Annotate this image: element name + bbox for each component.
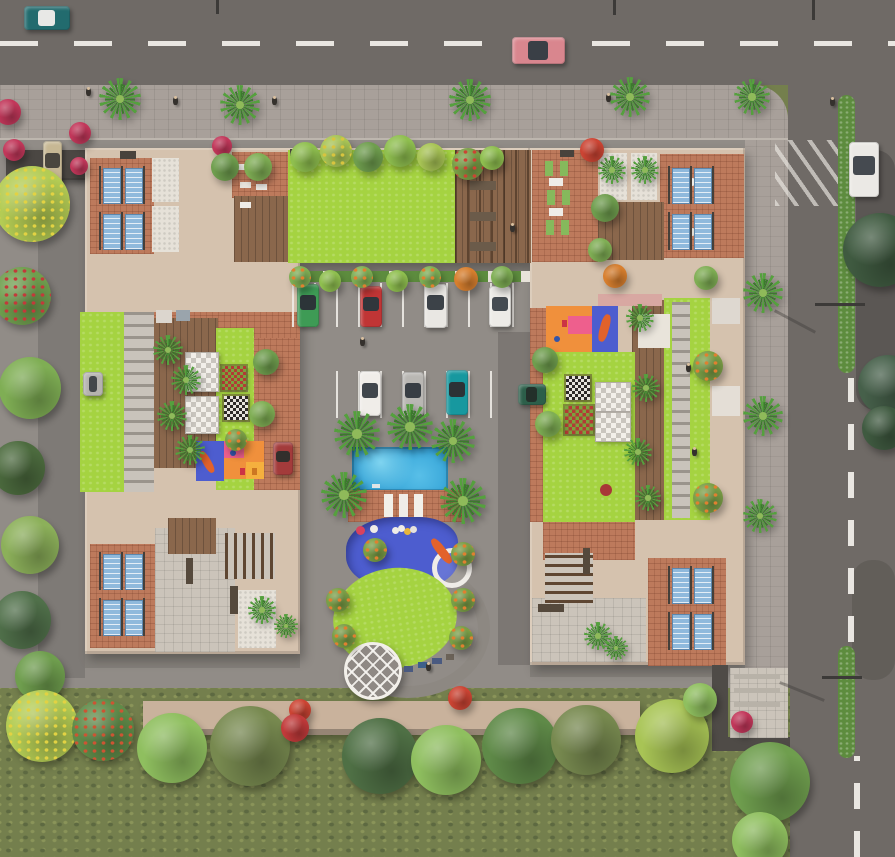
parked-car-red: [360, 286, 382, 327]
person: [360, 338, 365, 346]
palm-tree: [248, 596, 276, 624]
tree: [72, 699, 134, 761]
deco-rect: [554, 336, 560, 342]
tree: [454, 267, 478, 291]
palm-tree: [610, 77, 650, 117]
solar-lounger-group: [99, 212, 145, 250]
tree: [603, 264, 627, 288]
street-lamp: [779, 681, 825, 702]
palm-tree: [624, 438, 652, 466]
tree: [588, 238, 612, 262]
deco-rect: [398, 525, 405, 532]
tree: [448, 686, 472, 710]
tree: [244, 153, 272, 181]
tree: [289, 266, 311, 288]
deco-rect: [545, 161, 553, 176]
deco-rect: [370, 525, 378, 533]
tree: [482, 708, 558, 784]
tree: [862, 406, 895, 450]
deco-rect: [240, 468, 245, 475]
parked-car-darkgreen: [518, 384, 546, 405]
tree: [694, 266, 718, 290]
person: [692, 448, 697, 456]
tree: [683, 683, 717, 717]
tree: [351, 266, 373, 288]
palm-tree: [153, 335, 183, 365]
tree: [363, 538, 387, 562]
pergola-table: [185, 396, 219, 434]
palm-tree: [626, 304, 654, 332]
tree: [532, 347, 558, 373]
tree: [580, 138, 604, 162]
tree: [137, 713, 207, 783]
tree: [69, 122, 91, 144]
deco-rect: [734, 702, 780, 707]
palm-tree: [743, 499, 777, 533]
street-car-red: [512, 37, 565, 64]
palm-tree: [743, 273, 783, 313]
tree: [225, 429, 247, 451]
tree: [451, 542, 475, 566]
palm-tree: [387, 404, 433, 450]
street-car-teal: [24, 6, 70, 30]
street-lamp: [613, 0, 616, 15]
game-checkerboard: [222, 366, 246, 390]
deco-rect: [256, 184, 267, 190]
deco-rect: [470, 242, 496, 251]
street-lamp: [774, 309, 816, 333]
deco-rect: [561, 220, 569, 235]
tree: [693, 351, 723, 381]
palm-tree: [171, 365, 201, 395]
site-plan-render: [0, 0, 895, 857]
deco-rect: [399, 494, 408, 517]
pergola-table: [595, 382, 631, 412]
deco-rect: [583, 548, 590, 574]
parked-car-white: [424, 284, 447, 328]
tree: [730, 742, 810, 822]
parked-car-white: [489, 286, 511, 327]
deco-rect: [562, 190, 570, 205]
deco-rect: [549, 208, 563, 216]
tree: [452, 148, 484, 180]
solar-lounger-group: [668, 566, 714, 604]
deco-rect: [549, 178, 563, 186]
person: [86, 88, 91, 96]
tree: [332, 624, 356, 648]
deco-rect: [404, 666, 413, 672]
deco-rect: [240, 182, 251, 188]
tree: [3, 139, 25, 161]
tree: [70, 157, 88, 175]
tree: [319, 270, 341, 292]
tree: [417, 143, 445, 171]
tree: [386, 270, 408, 292]
tree: [353, 142, 383, 172]
tree: [551, 705, 621, 775]
solar-lounger-group: [668, 612, 714, 650]
person: [686, 364, 691, 372]
tree: [480, 146, 504, 170]
street-lamp: [216, 0, 219, 14]
tree: [449, 626, 473, 650]
solar-lounger-group: [99, 598, 145, 636]
deco-rect: [446, 654, 454, 660]
palm-tree: [743, 396, 783, 436]
solar-lounger-group: [99, 552, 145, 590]
tree: [491, 266, 513, 288]
tree: [0, 441, 45, 495]
deco-rect: [470, 212, 496, 221]
palm-tree: [220, 85, 260, 125]
parked-car-darkred: [273, 442, 293, 475]
tree: [320, 135, 352, 167]
deco-rect: [432, 658, 442, 664]
parked-car-white: [359, 371, 381, 416]
tree: [843, 213, 895, 287]
tree: [249, 401, 275, 427]
parked-car-silver: [83, 372, 103, 396]
palm-tree: [175, 435, 205, 465]
palm-tree: [734, 79, 770, 115]
tree: [451, 588, 475, 612]
tree: [326, 588, 350, 612]
deco-rect: [414, 494, 423, 517]
tree: [290, 142, 320, 172]
deco-rect: [156, 310, 172, 323]
deco-rect: [120, 151, 136, 159]
scene-items-layer: [0, 0, 895, 857]
game-checkerboard: [565, 406, 593, 434]
tree: [253, 349, 279, 375]
tree: [0, 591, 51, 649]
tree: [0, 99, 21, 125]
palm-tree: [431, 419, 475, 463]
deco-rect: [734, 688, 780, 693]
palm-tree: [157, 401, 187, 431]
palm-tree: [449, 79, 491, 121]
street-lamp: [822, 676, 862, 679]
person: [272, 97, 277, 105]
person: [173, 97, 178, 105]
deco-rect: [356, 526, 365, 535]
tree: [0, 166, 70, 242]
palm-tree: [632, 374, 660, 402]
tree: [210, 706, 290, 786]
deco-rect: [252, 468, 257, 475]
solar-lounger-group: [668, 212, 714, 250]
palm-tree: [631, 156, 659, 184]
tree: [419, 266, 441, 288]
deco-rect: [538, 604, 564, 612]
palm-tree: [598, 156, 626, 184]
deco-rect: [470, 181, 496, 190]
deco-rect: [240, 202, 251, 208]
tree: [1, 516, 59, 574]
parked-car-green: [297, 284, 319, 327]
street-lamp: [812, 0, 815, 20]
deco-rect: [410, 526, 417, 533]
deco-rect: [712, 386, 740, 416]
tree: [281, 714, 309, 742]
pergola-table: [595, 412, 631, 442]
tree: [211, 153, 239, 181]
deco-rect: [560, 161, 568, 176]
tree: [731, 711, 753, 733]
deco-rect: [372, 484, 380, 488]
solar-lounger-group: [99, 166, 145, 204]
deco-rect: [230, 586, 238, 614]
tree: [384, 135, 416, 167]
palm-tree: [440, 478, 486, 524]
game-checkerboard: [224, 396, 248, 420]
palm-tree: [274, 614, 298, 638]
tree: [535, 411, 561, 437]
tree: [342, 718, 418, 794]
tree: [693, 483, 723, 513]
tree: [0, 357, 61, 419]
parked-car-teal: [446, 370, 468, 415]
tree: [0, 267, 51, 325]
deco-rect: [562, 320, 567, 327]
deco-rect: [600, 484, 612, 496]
street-car-white: [849, 142, 879, 197]
deco-rect: [597, 313, 613, 342]
deco-rect: [186, 558, 193, 584]
person: [830, 98, 835, 106]
palm-tree: [635, 485, 661, 511]
deco-rect: [384, 494, 393, 517]
person: [510, 224, 515, 232]
deco-rect: [712, 298, 740, 324]
game-checkerboard: [566, 376, 590, 400]
palm-tree: [321, 472, 367, 518]
deco-rect: [560, 150, 574, 157]
deco-rect: [546, 220, 554, 235]
tree: [411, 725, 481, 795]
solar-lounger-group: [668, 166, 714, 204]
deco-rect: [547, 190, 555, 205]
deco-rect: [176, 310, 190, 321]
palm-tree: [604, 636, 628, 660]
person: [426, 663, 431, 671]
tree: [6, 690, 78, 762]
palm-tree: [99, 78, 141, 120]
palm-tree: [334, 411, 380, 457]
deco-rect: [734, 674, 780, 679]
street-lamp: [815, 303, 865, 306]
tree: [591, 194, 619, 222]
